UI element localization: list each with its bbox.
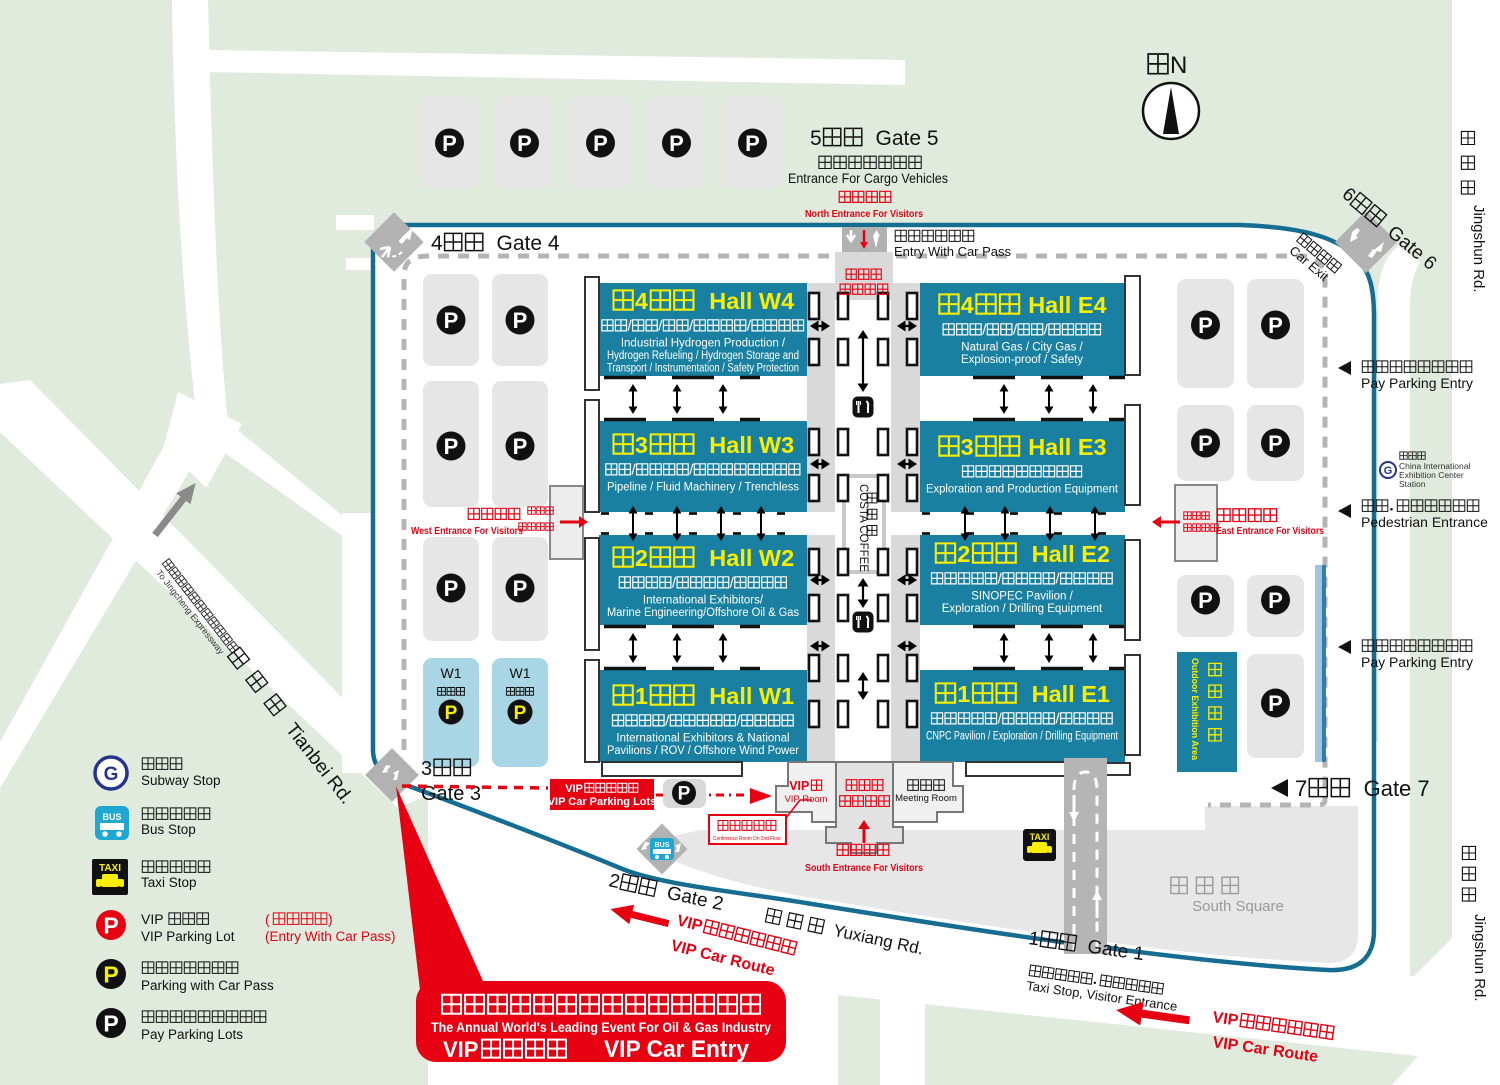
svg-text:Subway Stop: Subway Stop xyxy=(141,773,221,788)
svg-text:South Square: South Square xyxy=(1192,898,1284,915)
svg-text:Hall W1: Hall W1 xyxy=(709,683,794,709)
svg-text:Gate 7: Gate 7 xyxy=(1364,776,1430,801)
svg-text:P: P xyxy=(513,434,528,459)
svg-text:P: P xyxy=(517,131,532,156)
svg-text:North Entrance For Visitors: North Entrance For Visitors xyxy=(805,208,923,220)
svg-text:1: 1 xyxy=(957,681,970,707)
svg-text:Hall W3: Hall W3 xyxy=(709,432,794,458)
svg-text:Exploration and Production Equ: Exploration and Production Equipment xyxy=(926,484,1119,496)
svg-text:4: 4 xyxy=(961,292,974,318)
svg-text:South Entrance For Visitors: South Entrance For Visitors xyxy=(805,862,923,874)
svg-text:N: N xyxy=(1170,52,1187,79)
svg-text:Transport / Instrumentation /: Transport / Instrumentation / Safety Pro… xyxy=(607,363,799,375)
svg-text:2: 2 xyxy=(635,545,648,571)
svg-text:P: P xyxy=(513,576,528,601)
svg-text:P: P xyxy=(1198,588,1213,613)
svg-text:Hall E4: Hall E4 xyxy=(1028,292,1106,318)
svg-text:P: P xyxy=(103,912,118,938)
svg-text:3: 3 xyxy=(961,434,974,460)
svg-text:Conference Room On 2nd Floor: Conference Room On 2nd Floor xyxy=(713,836,781,842)
svg-text:Marine Engineering/Offshore Oi: Marine Engineering/Offshore Oil & Gas xyxy=(607,607,799,619)
svg-text:International Exhibitors & Nat: International Exhibitors & National xyxy=(616,733,789,745)
svg-text:Hall E1: Hall E1 xyxy=(1032,681,1110,707)
svg-text:7: 7 xyxy=(1295,776,1307,801)
svg-text:4: 4 xyxy=(431,232,443,255)
svg-text:Hall W4: Hall W4 xyxy=(709,288,794,314)
svg-text:Gate 5: Gate 5 xyxy=(876,127,939,150)
svg-text:P: P xyxy=(103,1010,118,1036)
svg-text:2: 2 xyxy=(957,541,970,567)
svg-text:VIP: VIP xyxy=(141,911,164,927)
svg-text:4: 4 xyxy=(635,288,648,314)
svg-text:P: P xyxy=(444,308,459,333)
svg-text:): ) xyxy=(328,911,333,927)
svg-text:CNPC Pavilion / Exploration /: CNPC Pavilion / Exploration / Drilling E… xyxy=(926,731,1119,743)
svg-text:The Annual World's Leading Eve: The Annual World's Leading Event For Oil… xyxy=(431,1019,771,1035)
svg-text:Pay Parking Lots: Pay Parking Lots xyxy=(141,1027,243,1042)
svg-text:P: P xyxy=(444,576,459,601)
svg-text:(Entry With Car Pass): (Entry With Car Pass) xyxy=(265,929,396,944)
svg-text:Hall W2: Hall W2 xyxy=(709,545,794,571)
svg-text:P: P xyxy=(669,131,684,156)
svg-text:P: P xyxy=(1268,588,1283,613)
svg-text:3: 3 xyxy=(635,432,648,458)
svg-text:TAXI: TAXI xyxy=(1030,832,1050,842)
svg-text:W1: W1 xyxy=(510,665,531,681)
svg-text:Pipeline / Fluid Machinery / T: Pipeline / Fluid Machinery / Trenchless xyxy=(607,482,799,494)
svg-text:P: P xyxy=(444,434,459,459)
svg-text:Entry With Car Pass: Entry With Car Pass xyxy=(894,244,1012,259)
svg-text:VIP: VIP xyxy=(443,1037,478,1062)
svg-text:Natural Gas / City Gas /: Natural Gas / City Gas / xyxy=(961,342,1083,354)
svg-text:BUS: BUS xyxy=(655,842,670,849)
svg-text:VIP: VIP xyxy=(565,783,583,795)
svg-text:P: P xyxy=(1198,431,1213,456)
svg-text:Industrial Hydrogen Production: Industrial Hydrogen Production / xyxy=(621,338,786,350)
svg-text:Outdoor Exhibition Area: Outdoor Exhibition Area xyxy=(1189,658,1200,761)
svg-text:Pay Parking Entry: Pay Parking Entry xyxy=(1361,375,1473,391)
svg-text:P: P xyxy=(442,131,457,156)
svg-text:International Exhibitors/: International Exhibitors/ xyxy=(643,595,764,607)
svg-text:Entrance For Cargo Vehicles: Entrance For Cargo Vehicles xyxy=(788,170,948,186)
svg-text:SINOPEC Pavilion /: SINOPEC Pavilion / xyxy=(971,591,1073,603)
svg-text:TAXI: TAXI xyxy=(99,863,121,874)
svg-text:(: ( xyxy=(265,911,270,927)
svg-text:P: P xyxy=(1268,691,1283,716)
svg-text:1: 1 xyxy=(635,683,648,709)
svg-text:P: P xyxy=(678,784,691,805)
svg-text:VIP Car Entry: VIP Car Entry xyxy=(604,1036,750,1063)
svg-text:Bus Stop: Bus Stop xyxy=(141,822,196,837)
svg-text:Hydrogen Refueling / Hydrogen: Hydrogen Refueling / Hydrogen Storage an… xyxy=(607,350,799,362)
svg-text:P: P xyxy=(445,703,458,724)
svg-text:P: P xyxy=(514,703,527,724)
svg-text:VIP Parking Lot: VIP Parking Lot xyxy=(141,929,235,944)
svg-text:P: P xyxy=(103,961,118,987)
svg-text:Explosion-proof / Safety: Explosion-proof / Safety xyxy=(961,354,1083,366)
svg-text:Jingshun Rd.: Jingshun Rd. xyxy=(1470,205,1487,293)
svg-text:Parking with Car Pass: Parking with Car Pass xyxy=(141,978,274,993)
svg-text:Meeting Room: Meeting Room xyxy=(895,793,957,804)
svg-text:5: 5 xyxy=(810,127,822,150)
svg-text:P: P xyxy=(1198,313,1213,338)
svg-text:P: P xyxy=(1268,313,1283,338)
svg-text:3: 3 xyxy=(421,758,432,780)
svg-text:P: P xyxy=(745,131,760,156)
svg-text:Jingshun Rd.: Jingshun Rd. xyxy=(1471,914,1488,1002)
svg-text:West Entrance For Visitors: West Entrance For Visitors xyxy=(411,525,523,537)
svg-text:Hall E2: Hall E2 xyxy=(1032,541,1110,567)
svg-text:Pedestrian Entrance: Pedestrian Entrance xyxy=(1361,514,1488,530)
svg-text:Pavilions / ROV / Offshore Win: Pavilions / ROV / Offshore Wind Power xyxy=(607,745,799,757)
svg-text:BUS: BUS xyxy=(102,812,121,822)
svg-text:Hall E3: Hall E3 xyxy=(1028,434,1106,460)
svg-text:P: P xyxy=(1268,431,1283,456)
svg-text:East Entrance For Visitors: East Entrance For Visitors xyxy=(1216,525,1324,537)
svg-text:Station: Station xyxy=(1399,479,1426,489)
svg-text:Gate 4: Gate 4 xyxy=(497,232,560,255)
svg-text:P: P xyxy=(513,308,528,333)
svg-text:G: G xyxy=(1384,465,1393,477)
svg-text:VIP: VIP xyxy=(1211,1009,1239,1029)
svg-text:W1: W1 xyxy=(441,665,462,681)
svg-text:Taxi Stop: Taxi Stop xyxy=(141,875,197,890)
svg-text:G: G xyxy=(104,764,119,785)
svg-text:VIP: VIP xyxy=(789,779,809,793)
svg-text:VIP Car Parking Lots: VIP Car Parking Lots xyxy=(548,796,657,808)
svg-text:P: P xyxy=(593,131,608,156)
svg-text:Exploration / Drilling Equipme: Exploration / Drilling Equipment xyxy=(942,603,1103,615)
svg-text:Pay Parking Entry: Pay Parking Entry xyxy=(1361,654,1473,670)
